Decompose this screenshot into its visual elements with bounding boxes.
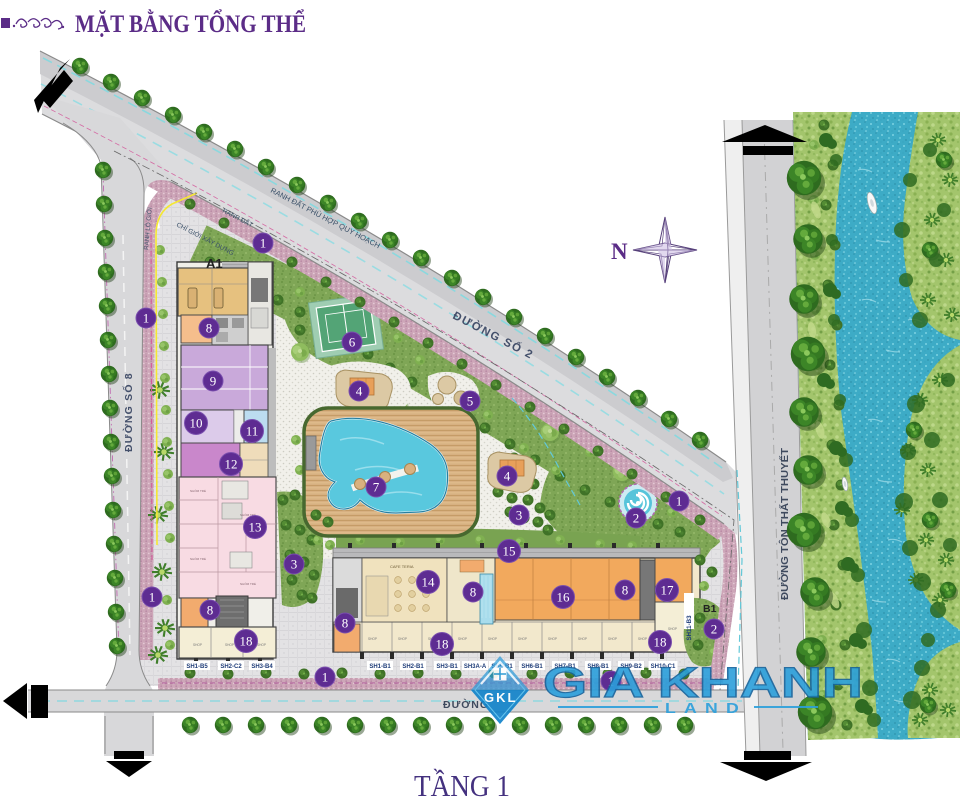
svg-text:SHOP: SHOP (578, 637, 587, 641)
svg-text:NHÓM TRẺ: NHÓM TRẺ (190, 556, 206, 561)
svg-text:SH2-C2: SH2-C2 (220, 664, 242, 670)
svg-text:SHOP: SHOP (608, 637, 617, 641)
svg-text:MẶT BẰNG TỔNG THỂ: MẶT BẰNG TỔNG THỂ (75, 9, 306, 38)
svg-text:7: 7 (373, 480, 380, 495)
svg-text:4: 4 (356, 384, 363, 399)
svg-text:SH3-B4: SH3-B4 (251, 664, 273, 670)
svg-text:SH1-B1: SH1-B1 (369, 664, 391, 670)
svg-text:8: 8 (622, 583, 629, 598)
svg-text:SHOP: SHOP (638, 637, 647, 641)
svg-text:SH6-B1: SH6-B1 (521, 664, 543, 670)
svg-text:6: 6 (349, 335, 356, 350)
svg-text:SHOP: SHOP (225, 643, 234, 647)
svg-text:SHOP: SHOP (398, 637, 407, 641)
svg-text:A1: A1 (206, 256, 223, 271)
svg-text:SHOP: SHOP (368, 637, 377, 641)
svg-text:N: N (611, 239, 628, 264)
svg-text:8: 8 (470, 585, 477, 600)
svg-text:1: 1 (322, 670, 329, 685)
svg-text:LAND: LAND (665, 700, 747, 717)
svg-text:1: 1 (676, 494, 683, 509)
svg-text:13: 13 (249, 520, 262, 535)
svg-text:SHOP: SHOP (458, 637, 467, 641)
svg-text:SHOP: SHOP (518, 637, 527, 641)
svg-text:16: 16 (557, 590, 571, 605)
svg-text:SH3A-A: SH3A-A (464, 664, 487, 670)
svg-text:SH2-B1: SH2-B1 (402, 664, 424, 670)
svg-text:TẦNG 1: TẦNG 1 (414, 768, 510, 803)
svg-text:SHOP: SHOP (193, 643, 202, 647)
svg-text:SH3-B1: SH3-B1 (436, 664, 458, 670)
svg-text:SHOP: SHOP (668, 627, 677, 631)
svg-text:2: 2 (633, 511, 640, 526)
svg-text:8: 8 (207, 603, 214, 618)
svg-text:18: 18 (654, 635, 667, 650)
svg-text:15: 15 (503, 544, 516, 559)
svg-text:5: 5 (467, 394, 474, 409)
svg-text:3: 3 (291, 557, 298, 572)
svg-text:17: 17 (661, 583, 675, 598)
svg-text:3: 3 (516, 508, 523, 523)
svg-text:8: 8 (206, 321, 213, 336)
svg-text:11: 11 (246, 424, 259, 439)
svg-text:4: 4 (504, 469, 511, 484)
svg-text:SH1-B5: SH1-B5 (186, 664, 208, 670)
svg-text:SHOP: SHOP (488, 637, 497, 641)
svg-text:ĐƯỜNG SỐ 8: ĐƯỜNG SỐ 8 (121, 372, 135, 452)
svg-text:NHÓM TRẺ: NHÓM TRẺ (240, 581, 256, 586)
svg-text:12: 12 (225, 457, 238, 472)
svg-text:10: 10 (190, 416, 203, 431)
svg-text:SHOP: SHOP (548, 637, 557, 641)
svg-text:2: 2 (711, 622, 718, 637)
svg-text:NHÓM TRẺ: NHÓM TRẺ (190, 488, 206, 493)
svg-text:18: 18 (240, 634, 253, 649)
svg-text:GKL: GKL (484, 690, 517, 705)
svg-text:8: 8 (342, 616, 349, 631)
svg-text:SH11-B3: SH11-B3 (686, 615, 693, 641)
svg-text:B1: B1 (703, 603, 717, 615)
svg-text:1: 1 (149, 590, 156, 605)
svg-text:9: 9 (210, 374, 217, 389)
svg-text:1: 1 (260, 236, 267, 251)
svg-text:14: 14 (422, 575, 436, 590)
svg-text:SHOP: SHOP (257, 643, 266, 647)
svg-text:18: 18 (436, 637, 449, 652)
svg-text:1: 1 (143, 311, 150, 326)
svg-text:CAFE TERIA: CAFE TERIA (390, 564, 414, 569)
